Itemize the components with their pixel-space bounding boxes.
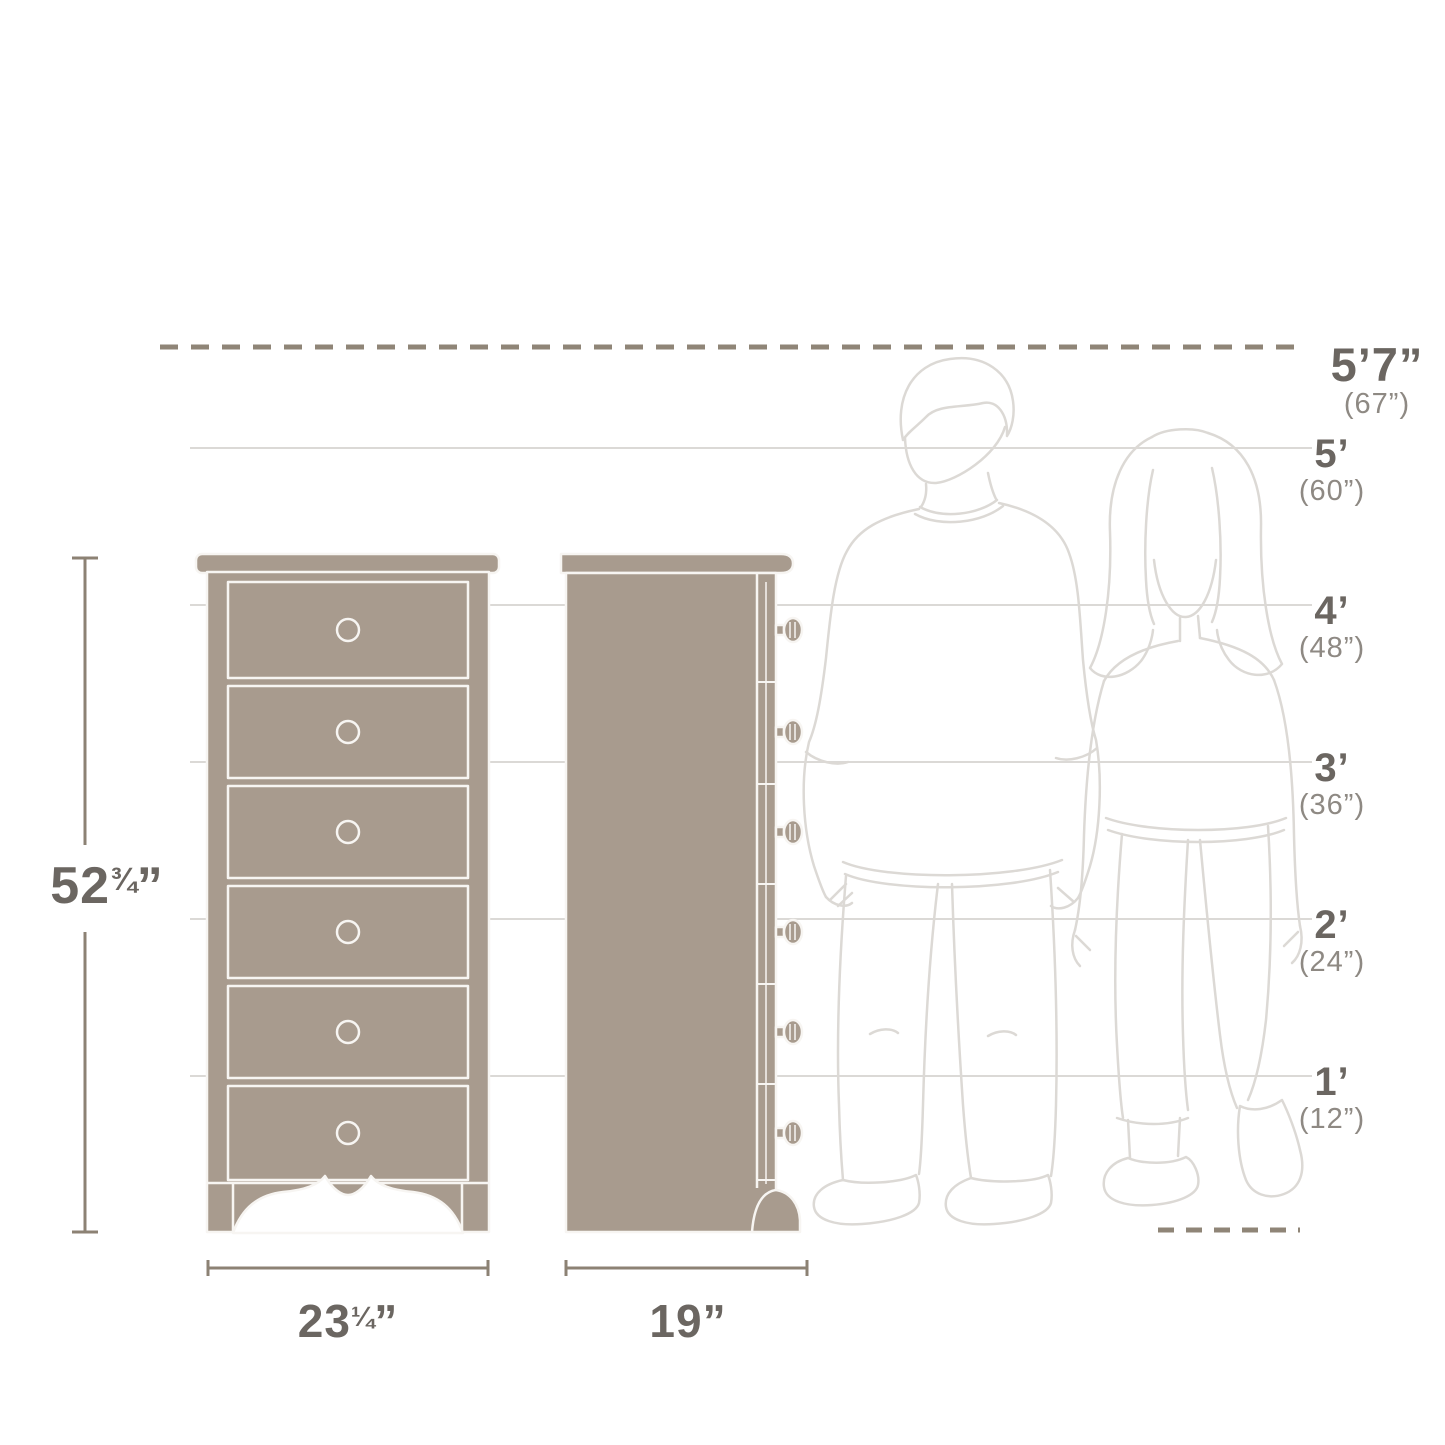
dresser-front-view [196, 554, 499, 1233]
height-label-main: 3’ [1247, 746, 1417, 790]
height-label-main: 4’ [1247, 589, 1417, 633]
drawer-front [228, 686, 468, 778]
product-height-label: 52¾” [0, 856, 217, 916]
height-label-sub: (12”) [1247, 1104, 1417, 1135]
drawer-front [228, 886, 468, 978]
height-label-main: 5’ [1247, 432, 1417, 476]
drawer-knob [776, 1020, 802, 1044]
human-scale-figures [804, 358, 1303, 1224]
drawer-knob [776, 720, 802, 744]
height-label-2ft: 2’ (24”) [1247, 903, 1417, 978]
width-unit: ” [374, 1295, 398, 1347]
dresser-side-view [561, 554, 802, 1232]
height-label-main: 1’ [1247, 1060, 1417, 1104]
height-label-1ft: 1’ (12”) [1247, 1060, 1417, 1135]
depth-dimension-line [566, 1260, 807, 1276]
dimension-diagram: 5’7” (67”) 5’ (60”) 4’ (48”) 3’ (36”) 2’… [0, 0, 1445, 1445]
width-fraction: ¼ [351, 1301, 374, 1332]
drawer-knob [776, 920, 802, 944]
diagram-canvas [0, 0, 1445, 1445]
height-label-5ft: 5’ (60”) [1247, 432, 1417, 507]
height-label-3ft: 3’ (36”) [1247, 746, 1417, 821]
height-label-4ft: 4’ (48”) [1247, 589, 1417, 664]
drawer-front [228, 582, 468, 678]
height-unit: ” [137, 857, 164, 915]
height-label-sub: (24”) [1247, 947, 1417, 978]
height-value: 52 [50, 857, 110, 915]
height-label-sub: (67”) [1292, 389, 1445, 420]
product-depth-label: 19” [578, 1294, 798, 1348]
height-label-sub: (60”) [1247, 476, 1417, 507]
width-dimension-line [208, 1260, 488, 1276]
height-label-sub: (36”) [1247, 790, 1417, 821]
side-top-cap [561, 554, 793, 573]
man-figure [804, 358, 1100, 1224]
side-body [566, 573, 776, 1232]
depth-value: 19 [649, 1295, 702, 1347]
height-label-main: 2’ [1247, 903, 1417, 947]
height-fraction: ¾ [110, 861, 137, 897]
side-drawer-knobs [776, 618, 802, 1145]
height-label-main: 5’7” [1292, 341, 1445, 389]
drawer-front [228, 1086, 468, 1180]
drawer-front [228, 986, 468, 1078]
height-label-5ft7: 5’7” (67”) [1292, 341, 1445, 420]
depth-unit: ” [703, 1295, 727, 1347]
product-width-label: 23¼” [238, 1294, 458, 1348]
drawer-front [228, 786, 468, 878]
drawer-knob [776, 1121, 802, 1145]
drawer-knob [776, 618, 802, 642]
width-value: 23 [298, 1295, 351, 1347]
drawer-knob [776, 820, 802, 844]
front-top-cap [196, 554, 499, 573]
height-label-sub: (48”) [1247, 633, 1417, 664]
